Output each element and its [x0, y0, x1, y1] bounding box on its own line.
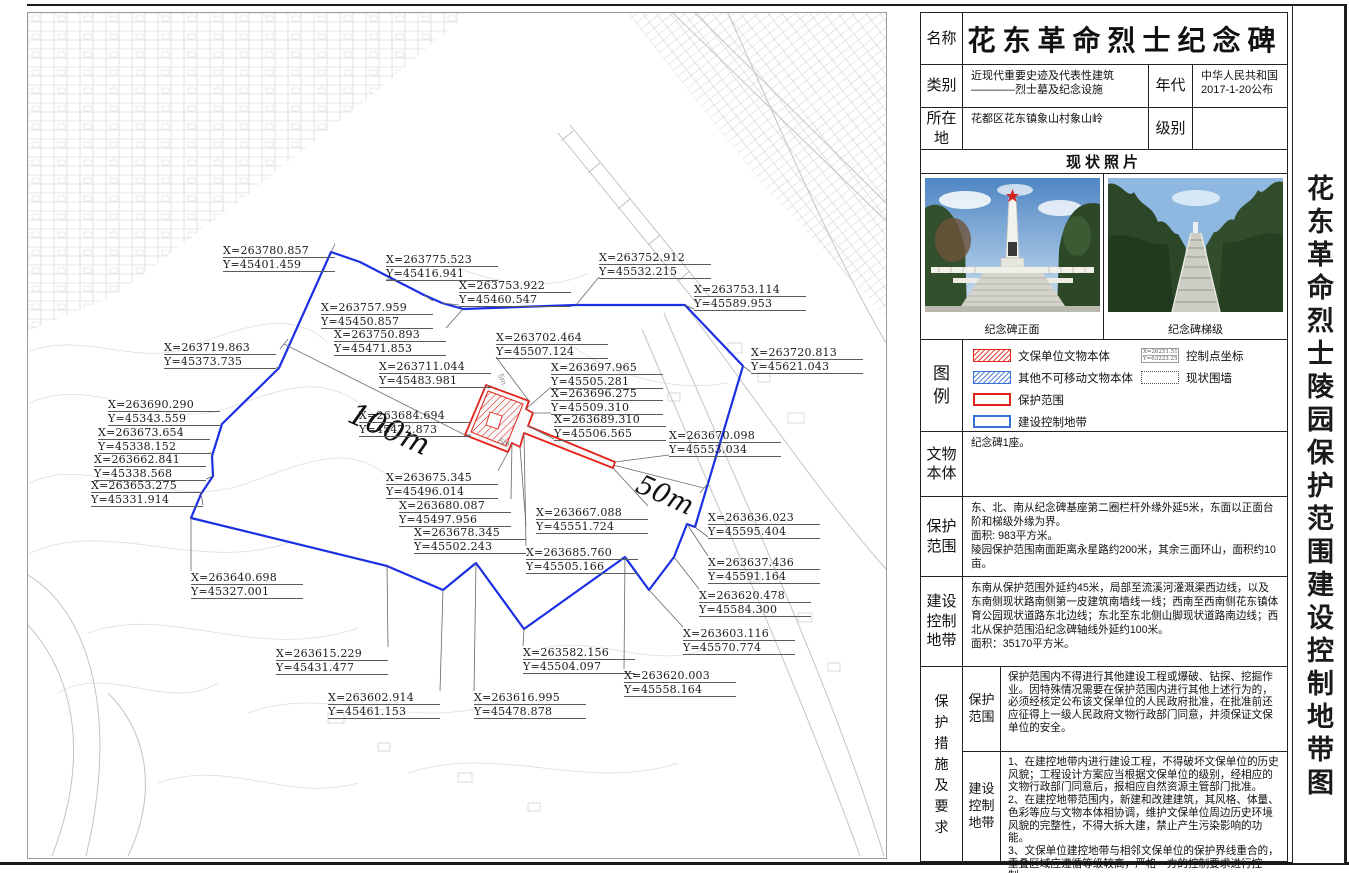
leader-line: [201, 494, 203, 505]
level-value: [1193, 108, 1287, 150]
measures-scope-text: 保护范围内不得进行其他建设工程或爆破、钻探、挖掘作业。因特殊情况需要在保护范围内…: [1001, 667, 1287, 752]
legend-content: 文保单位文物本体 其他不可移动文物本体 保护范围 建设控制地带 X=26251.…: [963, 340, 1287, 432]
legend-item-label: 保护范围: [1018, 392, 1064, 408]
dimension-text: 100m: [343, 396, 436, 463]
measures-zone-text: 1、在建控地带内进行建设工程，不得破坏文保单位的历史风貌；工程设计方案应当根据文…: [1001, 752, 1287, 861]
legend-item-control-point: X=26251.511Y=63223.251 控制点坐标: [1141, 347, 1244, 364]
blue-outline-swatch-icon: [973, 415, 1011, 428]
measures-label: 保 护 措 施 及 要 求: [921, 667, 963, 861]
leader-line: [387, 566, 388, 647]
leader-line: [440, 590, 443, 691]
zone-row-text: 东南从保护范围外延约45米，局部至流溪河灌溉渠西边线，以及东南侧现状路南侧第一皮…: [963, 577, 1287, 667]
title-panel: 花东革命烈士陵园保护范围建设控制地带图: [1292, 5, 1345, 864]
leader-line: [474, 563, 476, 691]
sheet-border-top: [27, 4, 1346, 6]
leader-line: [523, 629, 524, 646]
info-panel: 名称 花东革命烈士纪念碑 类别 近现代重要史迹及代表性建筑 ————烈士墓及纪念…: [920, 12, 1288, 862]
photo-cell-right: 纪念碑梯级: [1104, 174, 1287, 340]
map-feature-layer: 100m50m5m5m: [191, 244, 751, 691]
legend-item-label: 现状围墙: [1186, 370, 1232, 386]
photos-header: 现状照片: [921, 150, 1287, 174]
era-value: 中华人民共和国 2017-1-20公布: [1193, 65, 1287, 108]
era-label: 年代: [1149, 65, 1193, 108]
sheet-border-right: [1345, 4, 1347, 864]
leader-line: [446, 309, 463, 328]
photo-monument-steps: [1108, 178, 1283, 312]
leader-line: [498, 452, 508, 471]
edge-dimension-text: 5m: [496, 373, 508, 387]
location-value: 花都区花东镇象山村象山岭: [963, 108, 1149, 150]
leader-line: [615, 455, 669, 462]
legend-item-existing-wall: 现状围墙: [1141, 369, 1232, 386]
map-canvas: 100m50m5m5m: [28, 13, 886, 858]
leader-line: [524, 433, 526, 546]
leader-line: [649, 590, 683, 627]
location-label: 所在 地: [921, 108, 963, 150]
legend-item-construction-zone: 建设控制地带: [973, 413, 1087, 430]
legend-item-protection-scope: 保护范围: [973, 391, 1064, 408]
zone-row-label: 建设 控制 地带: [921, 577, 963, 667]
sheet-title-vertical: 花东革命烈士陵园保护范围建设控制地带图: [1299, 174, 1338, 801]
blue-hatch-swatch-icon: [973, 371, 1011, 384]
dotted-outline-swatch-icon: [1141, 371, 1179, 384]
red-outline-swatch-icon: [973, 393, 1011, 406]
level-label: 级别: [1149, 108, 1193, 150]
leader-line: [624, 557, 625, 669]
map-panel: 100m50m5m5m X=263780.857Y=45401.459X=263…: [27, 12, 887, 859]
photo-caption-right: 纪念碑梯级: [1104, 321, 1287, 337]
leader-line: [695, 527, 708, 537]
legend-label: 图 例: [921, 340, 963, 432]
measures-scope-label: 保护 范围: [963, 667, 1001, 752]
legend-item-relic-body: 文保单位文物本体: [973, 347, 1110, 364]
leader-line: [743, 366, 751, 372]
scope-row-label: 保护 范围: [921, 497, 963, 577]
scope-row-text: 东、北、南从纪念碑基座第二圈栏杆外缘外延5米，东面以正面台阶和梯级外缘为界。 面…: [963, 497, 1287, 577]
measures-zone-label: 建设 控制 地带: [963, 752, 1001, 861]
construction-zone-boundary: [191, 252, 743, 629]
dimension-tick: [280, 339, 288, 349]
legend-item-other-immovable: 其他不可移动文物本体: [973, 369, 1133, 386]
dimension-text: 50m: [631, 469, 698, 522]
leader-line: [526, 387, 551, 409]
leader-line: [331, 244, 335, 252]
coord-box-swatch-icon: X=26251.511Y=63223.251: [1141, 348, 1179, 363]
legend-item-label: 控制点坐标: [1186, 348, 1244, 364]
name-label: 名称: [921, 13, 963, 65]
red-hatch-swatch-icon: [973, 349, 1011, 362]
category-label: 类别: [921, 65, 963, 108]
legend-item-label: 建设控制地带: [1018, 414, 1087, 430]
relic-body-text: 纪念碑1座。: [963, 432, 1287, 497]
legend-item-label: 文保单位文物本体: [1018, 348, 1110, 364]
photo-cell-left: 纪念碑正面: [921, 174, 1104, 340]
leader-line: [576, 277, 599, 305]
legend-item-label: 其他不可移动文物本体: [1018, 370, 1133, 386]
photo-monument-front: [925, 178, 1100, 312]
drawing-sheet: 100m50m5m5m X=263780.857Y=45401.459X=263…: [0, 0, 1349, 873]
photo-caption-left: 纪念碑正面: [921, 321, 1103, 337]
name-value: 花东革命烈士纪念碑: [963, 13, 1287, 65]
category-value: 近现代重要史迹及代表性建筑 ————烈士墓及纪念设施: [963, 65, 1149, 108]
leader-line: [511, 443, 512, 499]
leader-lines: [191, 244, 751, 691]
leader-line: [674, 557, 699, 589]
relic-body-label: 文物 本体: [921, 432, 963, 497]
basemap-decoration: [28, 13, 886, 856]
